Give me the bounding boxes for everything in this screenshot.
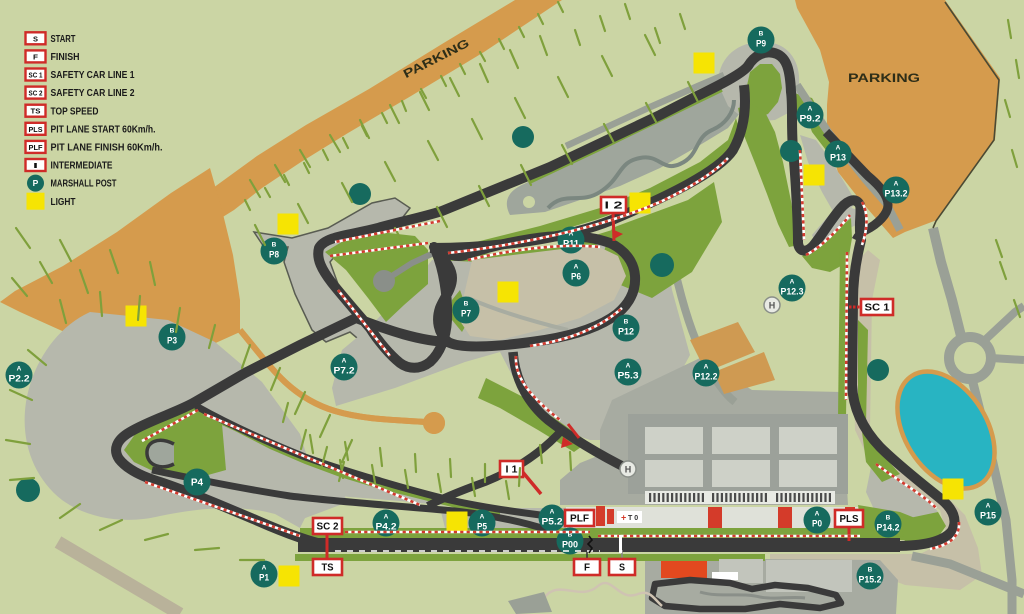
svg-text:P3: P3	[167, 336, 177, 346]
svg-text:P7: P7	[461, 309, 471, 319]
svg-text:B: B	[170, 328, 175, 335]
svg-text:LIGHT: LIGHT	[51, 197, 77, 208]
svg-text:INTERMEDIATE: INTERMEDIATE	[51, 161, 113, 172]
svg-text:B: B	[868, 567, 873, 574]
svg-text:PARKING: PARKING	[848, 71, 920, 85]
svg-text:SC 2: SC 2	[317, 522, 339, 533]
svg-text:SAFETY CAR LINE 1: SAFETY CAR LINE 1	[51, 70, 135, 81]
svg-text:A: A	[626, 363, 631, 370]
svg-text:P5: P5	[477, 522, 487, 532]
svg-text:P5.3: P5.3	[618, 371, 639, 381]
svg-text:P14.2: P14.2	[877, 523, 900, 533]
svg-text:PIT LANE START 60Km/h.: PIT LANE START 60Km/h.	[51, 124, 156, 135]
svg-text:A: A	[790, 279, 795, 286]
svg-text:F: F	[584, 563, 590, 574]
svg-text:P4: P4	[191, 478, 204, 489]
svg-text:A: A	[342, 358, 347, 365]
svg-text:A: A	[384, 514, 389, 521]
svg-text:A: A	[704, 364, 709, 371]
svg-text:P15: P15	[980, 511, 996, 521]
svg-text:A: A	[17, 366, 22, 373]
svg-text:TS: TS	[322, 563, 334, 574]
svg-text:P1: P1	[259, 573, 269, 583]
svg-text:P6: P6	[571, 272, 581, 282]
svg-text:A: A	[808, 106, 813, 113]
svg-text:PIT LANE FINISH 60Km/h.: PIT LANE FINISH 60Km/h.	[51, 143, 163, 154]
svg-text:P12.2: P12.2	[695, 372, 718, 382]
svg-text:H: H	[769, 301, 776, 311]
svg-text:TOP SPEED: TOP SPEED	[51, 106, 99, 117]
svg-text:A: A	[574, 264, 579, 271]
svg-text:A: A	[836, 145, 841, 152]
svg-text:H: H	[625, 465, 632, 475]
svg-text:B: B	[624, 319, 629, 326]
svg-text:I 2: I 2	[605, 201, 624, 212]
svg-text:A: A	[986, 503, 991, 510]
svg-text:P0: P0	[812, 519, 822, 529]
svg-text:S: S	[33, 34, 38, 43]
svg-text:A: A	[815, 511, 820, 518]
svg-text:P8: P8	[269, 250, 279, 260]
svg-text:I: I	[33, 161, 38, 170]
svg-text:P13: P13	[830, 153, 846, 163]
svg-text:PLS: PLS	[840, 514, 859, 525]
svg-text:A: A	[894, 181, 899, 188]
svg-text:P13.2: P13.2	[885, 189, 908, 199]
svg-text:MARSHALL POST: MARSHALL POST	[51, 179, 118, 190]
svg-text:B: B	[272, 242, 277, 249]
svg-text:P2.2: P2.2	[9, 374, 30, 384]
svg-text:PLF: PLF	[29, 143, 43, 152]
svg-text:SC 1: SC 1	[29, 71, 43, 80]
svg-text:SC 2: SC 2	[29, 89, 43, 98]
svg-text:START: START	[51, 34, 77, 45]
svg-text:A: A	[480, 514, 485, 521]
svg-text:TS: TS	[31, 107, 41, 116]
svg-text:SAFETY CAR LINE 2: SAFETY CAR LINE 2	[51, 88, 135, 99]
svg-text:A: A	[262, 565, 267, 572]
svg-text:P5.2: P5.2	[542, 517, 563, 527]
svg-text:FINISH: FINISH	[51, 52, 80, 63]
svg-text:A: A	[550, 509, 555, 516]
svg-text:PLS: PLS	[29, 125, 43, 134]
svg-text:SC 1: SC 1	[865, 303, 890, 314]
svg-text:+: +	[621, 513, 626, 523]
svg-text:P00: P00	[562, 540, 578, 550]
svg-text:B: B	[759, 31, 764, 38]
svg-text:S: S	[619, 563, 625, 574]
svg-text:P: P	[33, 178, 39, 188]
svg-text:P4.2: P4.2	[376, 522, 397, 532]
svg-text:T 0: T 0	[628, 515, 638, 522]
svg-text:P9: P9	[756, 39, 766, 49]
svg-text:I 1: I 1	[506, 465, 518, 476]
svg-text:P12: P12	[618, 327, 634, 337]
svg-text:F: F	[33, 52, 38, 61]
svg-text:B: B	[464, 301, 469, 308]
svg-text:B: B	[886, 515, 891, 522]
svg-text:P9.2: P9.2	[800, 114, 821, 124]
svg-text:PLF: PLF	[570, 514, 589, 525]
svg-text:P12.3: P12.3	[781, 287, 804, 297]
svg-text:P7.2: P7.2	[334, 366, 355, 376]
svg-text:P15.2: P15.2	[859, 575, 882, 585]
